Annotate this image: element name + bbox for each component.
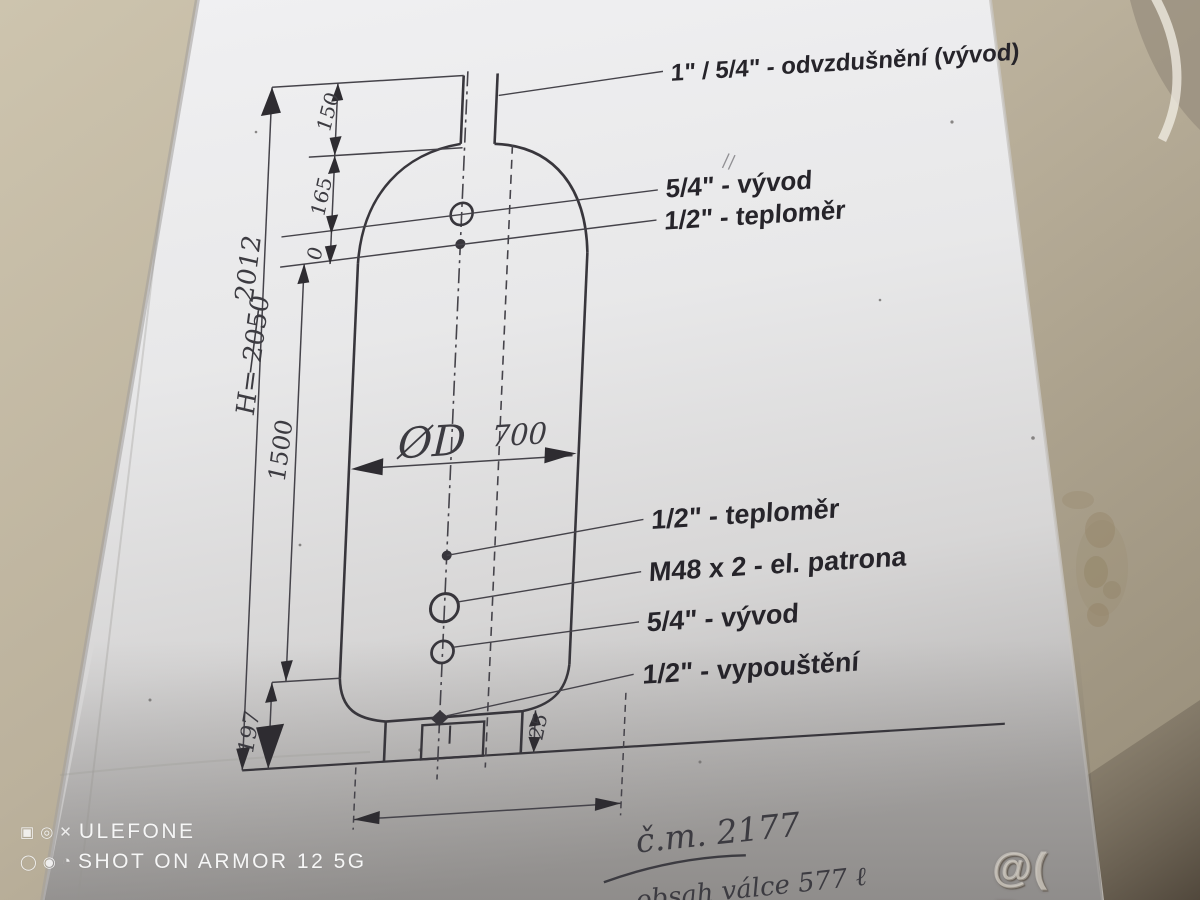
camera-brand-text: ULEFONE [79, 820, 196, 844]
ring-icon: ◯ [20, 853, 37, 871]
camera-watermark-icons2: ◯◉◔ [20, 853, 71, 871]
shutter-icon: ◉ [43, 853, 56, 871]
skirt-right [521, 711, 523, 753]
site-watermark: @( Bazos.cz [993, 845, 1200, 900]
skirt-opening-mark [449, 726, 450, 744]
camera-watermark-icons1: ▣◎✕ [20, 823, 72, 841]
sd-card-icon: ▣ [20, 823, 34, 841]
hdr-icon: ◎ [40, 823, 53, 841]
photo-of-technical-drawing: 1" / 5/4" - odvzdušnění (vývod) 5/4" - v… [0, 0, 1200, 900]
camera-caption-text: SHOT ON ARMOR 12 5G [78, 850, 367, 874]
drawing-canvas: 1" / 5/4" - odvzdušnění (vývod) 5/4" - v… [0, 0, 1200, 900]
skirt-left [384, 722, 386, 762]
camera-watermark-row1: ▣◎✕ ULEFONE [20, 817, 367, 847]
camera-watermark: ▣◎✕ ULEFONE ◯◉◔ SHOT ON ARMOR 12 5G [20, 817, 367, 877]
dim-diameter-value: 700 [491, 416, 548, 453]
close-icon: ✕ [59, 823, 72, 841]
timer-icon: ◔ [62, 853, 71, 871]
dim-diameter-symbol: ØD [396, 415, 467, 468]
camera-watermark-row2: ◯◉◔ SHOT ON ARMOR 12 5G [20, 847, 367, 877]
